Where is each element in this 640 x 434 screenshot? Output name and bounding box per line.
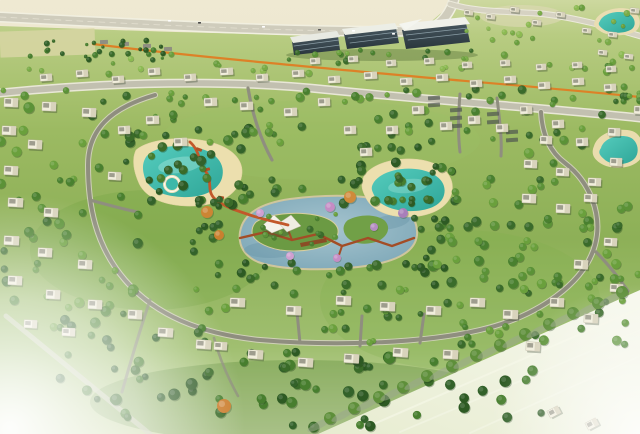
villa-roof-deck: [631, 9, 635, 12]
villa-side-face: [91, 108, 97, 117]
villa-roof-deck: [175, 139, 181, 143]
tree-highlight: [269, 99, 272, 102]
tree-highlight: [480, 275, 484, 279]
villa-side-face: [372, 72, 377, 79]
villa-side-face: [611, 84, 616, 91]
villa-roof-deck: [299, 359, 306, 364]
tree-highlight: [426, 120, 430, 124]
tree-highlight: [144, 48, 146, 50]
tree-highlight: [449, 169, 452, 172]
tree-highlight: [538, 280, 542, 284]
tree-highlight: [340, 199, 344, 203]
street-east-1: [459, 94, 461, 152]
villa-roof-deck: [605, 239, 611, 243]
tree-highlight: [448, 278, 453, 283]
villa-side-face: [335, 76, 340, 83]
villa-roof-deck: [589, 179, 595, 183]
villa-roof-deck: [609, 129, 614, 133]
villa-building: [584, 194, 599, 204]
tree-highlight: [251, 69, 253, 71]
villa-side-face: [257, 350, 263, 359]
tree-highlight: [102, 131, 106, 135]
villa-roof-deck: [147, 117, 153, 121]
tree-highlight: [217, 197, 220, 200]
villa-side-face: [392, 60, 396, 66]
villa-building: [108, 172, 123, 183]
tree-highlight: [476, 16, 478, 18]
villa-side-face: [307, 358, 313, 367]
tree-highlight: [92, 41, 94, 43]
tree-highlight: [337, 51, 340, 54]
tree-highlight: [345, 263, 349, 267]
tree-highlight: [196, 127, 199, 130]
villa-building: [230, 298, 247, 309]
tree-highlight: [364, 305, 368, 309]
tree-highlight: [528, 268, 532, 272]
tree-highlight: [585, 218, 589, 222]
tree-highlight: [390, 111, 394, 115]
villa-side-face: [182, 138, 187, 146]
villa-side-face: [612, 66, 616, 72]
tree-highlight: [460, 403, 465, 408]
tree-highlight: [87, 57, 89, 59]
tree-highlight: [618, 206, 622, 210]
tree-highlight: [126, 52, 129, 55]
aerial-rendering-image: [0, 0, 640, 434]
villa-building: [572, 78, 586, 87]
tree-highlight: [344, 388, 349, 393]
villa-side-face: [155, 68, 160, 75]
tree-highlight: [159, 143, 163, 147]
tree-highlight: [531, 36, 533, 38]
tree-highlight: [254, 95, 256, 97]
tree-highlight: [515, 40, 517, 42]
villa-roof-deck: [605, 85, 610, 89]
tree-highlight: [191, 248, 195, 252]
tree-highlight: [196, 197, 200, 201]
tree-highlight: [397, 287, 401, 291]
tree-highlight: [291, 381, 294, 384]
villa-side-face: [527, 106, 532, 114]
tree-highlight: [216, 221, 220, 225]
villa-side-face: [354, 56, 358, 62]
tree-highlight: [169, 91, 172, 94]
tree-highlight: [25, 104, 30, 109]
villa-side-face: [515, 7, 519, 12]
tree-highlight: [27, 67, 29, 69]
villa-roof-deck: [337, 297, 343, 302]
villa-roof-deck: [609, 33, 613, 36]
tree-highlight: [465, 29, 467, 31]
villa-side-face: [12, 166, 18, 175]
tree-highlight: [619, 52, 622, 55]
tree-highlight: [204, 175, 208, 179]
tree-highlight: [233, 98, 236, 101]
villa-building: [256, 74, 270, 83]
villa-building: [348, 56, 360, 64]
villa-side-face: [452, 350, 458, 359]
villa-side-face: [506, 60, 510, 66]
villa-building: [4, 166, 20, 178]
tree-highlight: [61, 52, 63, 54]
villa-side-face: [443, 74, 448, 81]
villa-building: [522, 194, 538, 205]
tree-highlight: [367, 340, 370, 343]
villa-building: [598, 50, 609, 58]
tree-highlight: [446, 234, 450, 238]
tree-highlight: [469, 341, 472, 344]
villa-side-face: [561, 12, 565, 17]
villa-building: [360, 148, 374, 158]
tree-highlight: [378, 282, 382, 286]
villa-side-face: [617, 158, 622, 166]
tree-highlight: [424, 196, 428, 200]
villa-roof-deck: [575, 261, 581, 266]
villa-building: [412, 106, 426, 116]
tree-highlight: [218, 64, 220, 66]
tree-highlight: [266, 129, 270, 133]
tree-highlight: [414, 412, 418, 416]
villa-building: [556, 12, 567, 20]
tree-highlight: [487, 27, 489, 29]
villa-side-face: [119, 76, 124, 83]
tree-highlight: [46, 48, 48, 50]
villa-roof-deck: [607, 67, 611, 70]
villa-building: [624, 54, 635, 62]
tree-highlight: [334, 213, 336, 215]
tree-highlight: [358, 391, 363, 396]
tree-highlight: [453, 189, 456, 192]
villa-roof-deck: [249, 351, 256, 356]
tree-highlight: [151, 48, 154, 51]
spa-water: [166, 178, 178, 190]
villa-building: [532, 20, 543, 28]
villa-side-face: [419, 106, 424, 114]
tree-highlight: [294, 268, 298, 272]
car-6: [392, 33, 395, 35]
tree-highlight: [367, 265, 370, 268]
accent-tree-highlight: [346, 193, 351, 198]
villa-side-face: [402, 348, 408, 357]
villa-building: [520, 106, 534, 116]
tree-highlight: [614, 99, 616, 101]
tree-highlight: [110, 52, 113, 55]
villa-side-face: [613, 32, 617, 37]
tree-highlight: [237, 145, 241, 149]
tree-highlight: [392, 159, 396, 163]
villa-roof-deck: [221, 69, 227, 73]
tree-highlight: [358, 144, 362, 148]
villa-side-face: [612, 238, 617, 246]
tree-highlight: [570, 66, 573, 69]
villa-roof-deck: [497, 125, 502, 129]
villa-building: [436, 74, 450, 83]
villa-roof-deck: [469, 117, 474, 121]
tree-highlight: [552, 280, 555, 283]
tree-highlight: [272, 236, 274, 238]
villa-side-face: [447, 122, 452, 130]
tree-highlight: [84, 55, 86, 57]
tree-highlight: [135, 130, 139, 134]
tree-highlight: [161, 57, 162, 58]
tree-highlight: [190, 240, 193, 243]
villa-roof-deck: [365, 73, 371, 77]
villa-side-face: [565, 204, 571, 213]
tree-highlight: [144, 38, 147, 41]
villa-roof-deck: [381, 303, 387, 308]
tree-highlight: [357, 422, 361, 426]
accent-tree-highlight: [287, 253, 291, 257]
tree-highlight: [140, 132, 144, 136]
villa-building: [393, 347, 410, 359]
tree-highlight: [587, 225, 590, 228]
tree-highlight: [151, 58, 153, 60]
tree-highlight: [598, 39, 600, 41]
villa-roof-deck: [329, 77, 334, 81]
tree-highlight: [409, 197, 412, 200]
villa-roof-deck: [387, 61, 391, 64]
tree-highlight: [538, 11, 540, 13]
tree-highlight: [552, 179, 555, 182]
tree-highlight: [64, 88, 67, 91]
tree-highlight: [606, 39, 609, 42]
villa-roof-deck: [413, 107, 418, 111]
accent-tree-highlight: [215, 231, 220, 236]
villa-side-face: [407, 78, 412, 85]
tree-highlight: [418, 312, 421, 315]
tree-highlight: [272, 282, 275, 285]
villa-roof-deck: [541, 137, 546, 141]
villa-side-face: [503, 124, 508, 132]
villa-roof-deck: [425, 59, 429, 62]
tree-highlight: [400, 197, 403, 200]
villa-building: [524, 160, 539, 170]
villa-building: [184, 73, 198, 83]
villa-roof-deck: [523, 195, 529, 200]
tree-highlight: [295, 50, 297, 52]
villa-roof-deck: [394, 349, 401, 354]
villa-roof-deck: [113, 77, 118, 81]
tree-highlight: [555, 273, 559, 277]
villa-building: [630, 8, 640, 16]
tree-highlight: [373, 261, 377, 265]
tree-highlight: [239, 195, 244, 200]
villa-roof-deck: [471, 81, 476, 85]
tree-highlight: [301, 380, 306, 385]
villa-side-face: [316, 58, 320, 64]
car-1: [168, 20, 171, 22]
tree-highlight: [139, 67, 142, 70]
villa-building: [318, 98, 332, 108]
villa-roof-deck: [444, 351, 451, 356]
tree-highlight: [610, 59, 613, 62]
villa-roof-deck: [539, 83, 544, 87]
tree-highlight: [157, 189, 160, 192]
tree-highlight: [375, 393, 380, 398]
villa-roof-deck: [427, 307, 433, 312]
tree-highlight: [496, 331, 500, 335]
tree-highlight: [51, 162, 55, 166]
villa-building: [386, 126, 400, 136]
villa-side-face: [351, 126, 356, 134]
tree-highlight: [247, 191, 251, 195]
villa-side-face: [248, 102, 253, 110]
tree-highlight: [509, 258, 513, 262]
tree-highlight: [13, 148, 18, 153]
villa-building: [470, 298, 487, 309]
tree-highlight: [621, 24, 623, 26]
villa-roof-deck: [205, 99, 211, 103]
villa-side-face: [475, 116, 480, 124]
villa-side-face: [542, 64, 546, 70]
tree-highlight: [616, 223, 619, 226]
villa-side-face: [603, 50, 607, 55]
villa-building: [556, 168, 571, 178]
tree-highlight: [288, 398, 293, 403]
tree-highlight: [139, 48, 141, 50]
villa-building: [604, 238, 619, 249]
villa-roof-deck: [83, 109, 89, 114]
tree-highlight: [261, 225, 263, 227]
tree-highlight: [621, 99, 624, 102]
villa-roof-deck: [557, 205, 563, 210]
tree-highlight: [306, 71, 309, 74]
villa-roof-deck: [557, 13, 561, 16]
accent-tree-highlight: [203, 208, 208, 213]
tree-highlight: [310, 242, 312, 244]
tree-highlight: [399, 383, 404, 388]
tree-highlight: [419, 227, 422, 230]
villa-roof-deck: [149, 69, 154, 73]
tree-highlight: [612, 20, 614, 22]
street-south-2: [360, 316, 362, 346]
tree-highlight: [351, 180, 355, 184]
tree-highlight: [169, 52, 172, 55]
villa-building: [588, 178, 603, 188]
tree-highlight: [475, 257, 480, 262]
tree-highlight: [465, 223, 469, 227]
villa-building: [468, 116, 482, 126]
tree-highlight: [550, 102, 553, 105]
villa-roof-deck: [361, 149, 366, 153]
villa-side-face: [36, 140, 42, 149]
tree-highlight: [570, 96, 573, 99]
tree-highlight: [429, 139, 432, 142]
villa-side-face: [547, 136, 552, 144]
villa-building: [240, 102, 255, 112]
tree-highlight: [426, 49, 428, 51]
tree-highlight: [224, 136, 229, 141]
villa-building: [292, 70, 306, 79]
tree-highlight: [277, 140, 280, 143]
tree-highlight: [385, 353, 390, 358]
villa-building: [443, 350, 460, 362]
tree-highlight: [263, 233, 266, 236]
tree-highlight: [557, 282, 560, 285]
villa-roof-deck: [241, 103, 247, 107]
tree-highlight: [79, 140, 82, 143]
villa-building: [42, 102, 58, 113]
tree-highlight: [624, 11, 627, 14]
villa-side-face: [592, 194, 597, 202]
tree-highlight: [343, 281, 347, 285]
villa-building: [496, 124, 510, 134]
villa-side-face: [393, 126, 398, 134]
tree-highlight: [119, 43, 122, 46]
tree-highlight: [346, 52, 348, 54]
tree-highlight: [284, 350, 288, 354]
villa-building: [510, 7, 521, 15]
tree-highlight: [262, 65, 265, 68]
villa-roof-deck: [319, 99, 324, 103]
tree-highlight: [446, 381, 451, 386]
tree-highlight: [343, 326, 347, 330]
villa-building: [344, 353, 361, 365]
villa-side-face: [579, 78, 584, 85]
tree-highlight: [519, 273, 523, 277]
tree-highlight: [313, 52, 316, 55]
villa-building: [574, 260, 590, 272]
tree-highlight: [458, 341, 462, 345]
tree-highlight: [299, 123, 303, 127]
villa-roof-deck: [551, 299, 557, 304]
tree-highlight: [464, 128, 467, 131]
tree-highlight: [216, 261, 220, 265]
accent-tree-highlight: [334, 255, 338, 259]
tree-highlight: [147, 177, 150, 180]
parking-row-5: [487, 120, 499, 125]
tree-highlight: [483, 268, 486, 271]
car-2: [198, 22, 201, 24]
tree-highlight: [580, 225, 584, 229]
parking-row-2: [450, 116, 462, 121]
accent-tree-highlight: [399, 209, 404, 214]
villa-building: [426, 306, 443, 317]
tree-highlight: [497, 285, 500, 288]
villa-side-face: [511, 76, 516, 83]
tree-highlight: [517, 32, 520, 35]
villa-roof-deck: [77, 71, 82, 75]
tree-highlight: [315, 217, 317, 219]
tree-highlight: [313, 386, 316, 389]
tree-highlight: [293, 349, 297, 353]
villa-side-face: [292, 108, 297, 116]
tree-highlight: [524, 238, 527, 241]
tree-highlight: [161, 51, 163, 53]
tree-highlight: [167, 96, 170, 99]
villa-side-face: [125, 126, 130, 134]
tree-highlight: [165, 167, 169, 171]
tree-highlight: [183, 95, 185, 97]
tree-highlight: [385, 197, 389, 201]
villa-building: [112, 75, 126, 85]
tree-highlight: [462, 57, 464, 59]
tree-highlight: [432, 282, 436, 286]
villa-building: [2, 126, 18, 137]
tree-highlight: [413, 89, 417, 93]
tree-highlight: [503, 324, 506, 327]
villa-building: [503, 310, 520, 321]
villa-roof-deck: [504, 311, 510, 316]
tree-highlight: [196, 202, 199, 205]
tree-highlight: [233, 286, 237, 290]
villa-side-face: [512, 310, 518, 319]
villa-roof-deck: [5, 167, 11, 172]
villa-building: [462, 62, 474, 70]
tree-highlight: [258, 107, 261, 110]
shed-4: [164, 47, 172, 51]
tree-highlight: [637, 91, 639, 93]
